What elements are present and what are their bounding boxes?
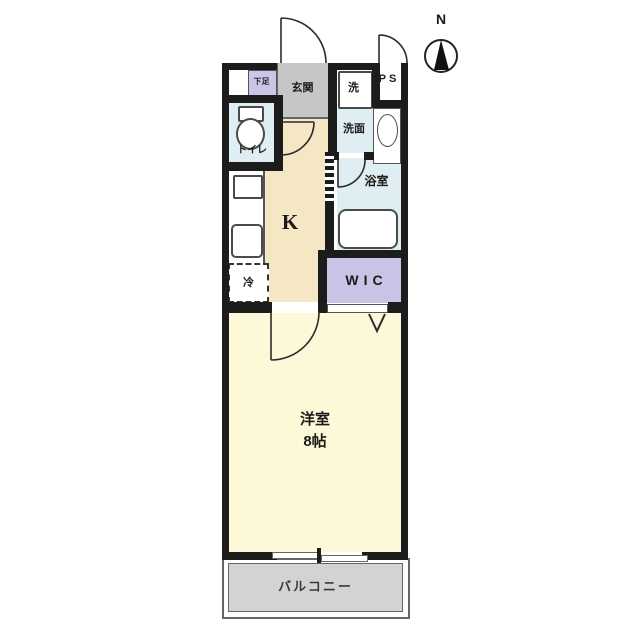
kitchen-sink	[231, 224, 263, 258]
sliding-door-panel-right	[321, 555, 368, 562]
wall-toilet-right	[274, 95, 283, 171]
wall-bottom-right	[362, 552, 408, 560]
wall-washroom-bath-b	[364, 152, 374, 160]
wall-bottom-left	[222, 552, 277, 560]
bathroom-label: 浴室	[352, 175, 401, 188]
wall-washroom-bath-a	[334, 152, 339, 160]
sliding-door-center-tick	[317, 548, 321, 563]
ps-door-arc	[379, 35, 407, 63]
entrance-label: 玄関	[277, 82, 328, 94]
compass	[425, 40, 457, 72]
laundry-label: 洗	[338, 71, 369, 105]
floor-plan: バルコニー 玄関 下足 洗 PS トイレ 洗面 浴室 K 冷 WIC 洋室 8帖…	[0, 0, 640, 640]
wall-toilet-bottom	[222, 162, 283, 171]
compass-north-label: N	[429, 12, 453, 27]
washroom-label: 洗面	[334, 123, 374, 135]
wall-core-top	[328, 63, 337, 153]
stove-top	[233, 175, 263, 199]
wall-hatched-duct	[325, 152, 334, 203]
wic-label: WIC	[327, 258, 401, 303]
shoe-cabinet-label: 下足	[248, 70, 275, 95]
wall-bath-wic	[325, 250, 408, 258]
vanity-sink	[377, 114, 398, 147]
wall-room-top-right	[388, 302, 408, 313]
wic-door-track	[327, 304, 388, 313]
balcony-label: バルコニー	[278, 580, 353, 594]
wall-wic-left	[318, 250, 327, 313]
bathtub	[338, 209, 398, 249]
wall-room-top-left	[222, 302, 272, 313]
sliding-door-panel-left	[272, 552, 319, 559]
kitchen-label: K	[276, 211, 304, 234]
western-room-label: 洋室	[229, 412, 401, 429]
refrigerator-label: 冷	[228, 263, 269, 303]
wall-top-left	[222, 63, 277, 70]
compass-circle	[425, 40, 457, 72]
pipe-space-label: PS	[374, 73, 404, 85]
wall-ps-bottom	[372, 100, 408, 108]
balcony-deck: バルコニー	[228, 563, 403, 612]
western-room-size-label: 8帖	[229, 434, 401, 451]
entrance-door-arc	[281, 18, 326, 63]
compass-needle	[434, 40, 449, 70]
toilet-label: トイレ	[229, 145, 275, 156]
